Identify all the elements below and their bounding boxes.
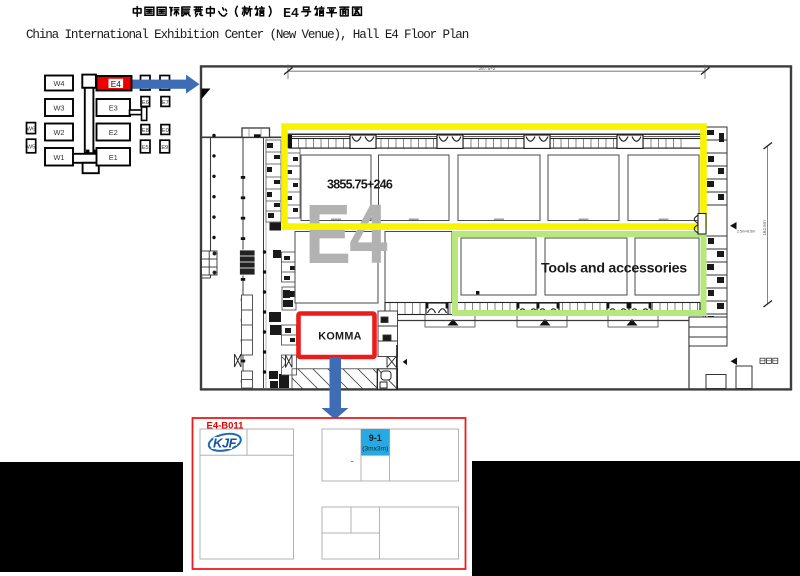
svg-text:E7: E7 [162, 100, 169, 106]
svg-text:E4: E4 [305, 188, 388, 282]
svg-text:287.5+2: 287.5+2 [479, 66, 496, 71]
svg-text:W1: W1 [53, 153, 64, 162]
svg-text:162.5m: 162.5m [762, 220, 767, 235]
svg-text:3855.75+246: 3855.75+246 [327, 178, 393, 192]
svg-text:E1: E1 [109, 153, 118, 162]
svg-text:E4: E4 [283, 7, 299, 22]
svg-text:China International Exhibition: China International Exhibition Center (N… [26, 28, 469, 42]
svg-text:W4: W4 [53, 79, 64, 88]
svg-text:KOMMA: KOMMA [318, 331, 361, 343]
svg-text:E6: E6 [142, 100, 149, 106]
svg-text:E2: E2 [109, 128, 118, 137]
svg-text:E4: E4 [111, 80, 121, 89]
svg-text:(3mx3m): (3mx3m) [362, 446, 388, 453]
svg-text:W6: W6 [27, 127, 35, 133]
svg-text:Tools and accessories: Tools and accessories [541, 261, 687, 277]
svg-text:E0: E0 [162, 128, 169, 134]
svg-text:E4-B011: E4-B011 [207, 421, 245, 432]
svg-text:2.5m×6.5m: 2.5m×6.5m [737, 230, 755, 234]
svg-text:W3: W3 [53, 104, 64, 113]
svg-text:E9: E9 [161, 145, 168, 151]
svg-text:E5: E5 [142, 145, 149, 151]
svg-text:E3: E3 [109, 104, 118, 113]
svg-text:E8: E8 [142, 128, 149, 134]
svg-text:KJF: KJF [213, 436, 238, 451]
svg-text:W5: W5 [27, 144, 35, 150]
svg-text:W2: W2 [53, 128, 64, 137]
svg-text:9-1: 9-1 [369, 433, 382, 443]
